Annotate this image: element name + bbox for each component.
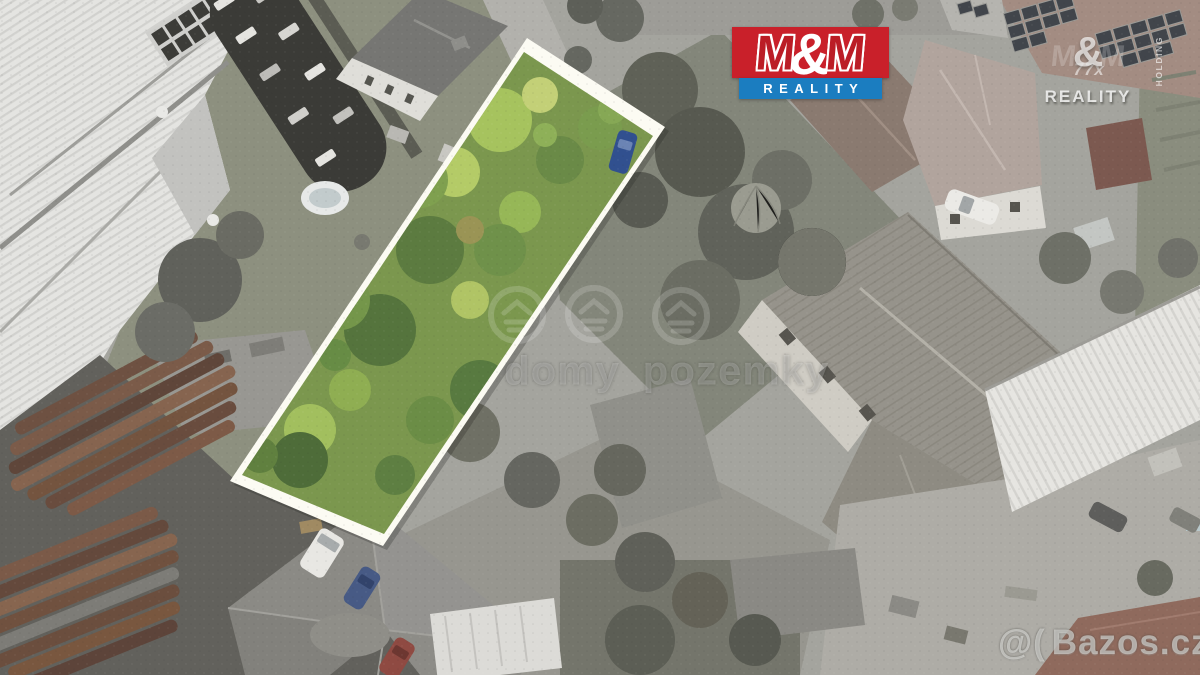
domy-pozemky-watermark: domy pozemky	[504, 348, 829, 394]
bazos-watermark-symbol: @(	[998, 623, 1046, 662]
aerial-scene	[0, 0, 1200, 675]
mm-watermark-holding: HOLDING	[1154, 36, 1164, 86]
aerial-photo: M & M REALITY M & M 77x HOLDING REALITY …	[0, 0, 1200, 675]
bazos-watermark: @(Bazos.cz	[998, 623, 1200, 663]
mm-reality-watermark: M & M 77x HOLDING REALITY	[1028, 28, 1148, 107]
mm-logo-red-box: M & M	[732, 27, 889, 78]
mm-watermark-ampersand: &	[1073, 28, 1103, 76]
photo-grain	[0, 0, 1200, 675]
mm-watermark-monogram: M & M 77x HOLDING	[1028, 28, 1148, 76]
bazos-watermark-site: Bazos.cz	[1052, 623, 1200, 662]
mm-reality-logo: M & M REALITY	[732, 27, 889, 99]
mm-logo-ampersand: &	[788, 24, 834, 82]
mm-watermark-reality: REALITY	[1028, 87, 1148, 107]
